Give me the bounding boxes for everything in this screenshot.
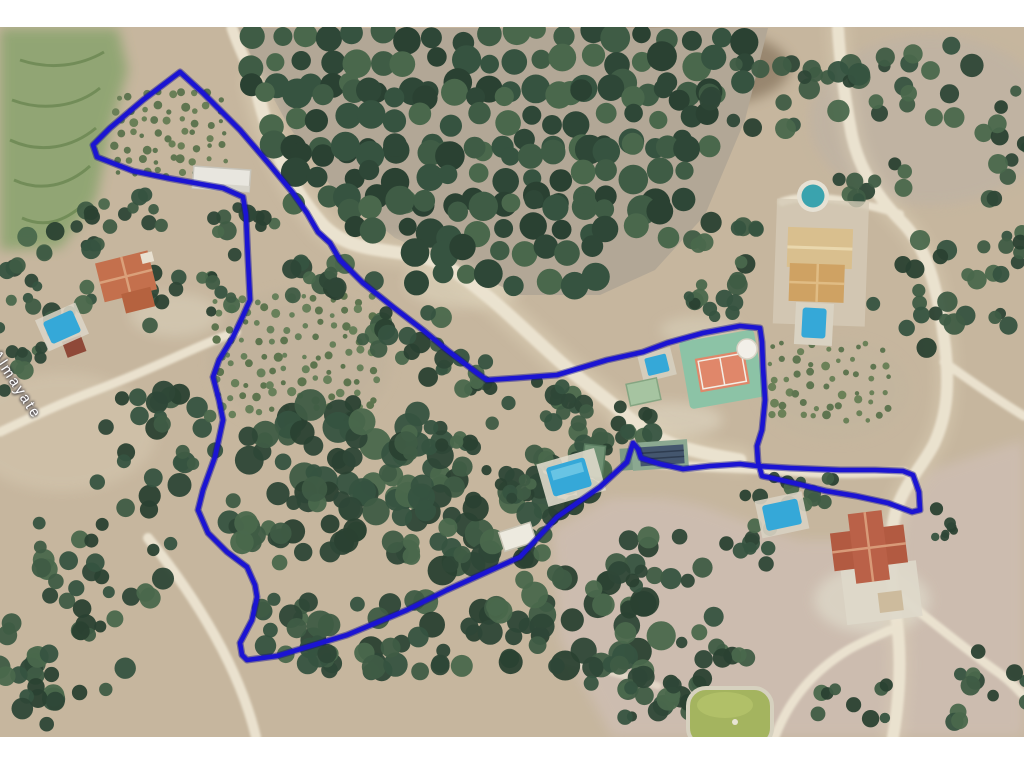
satellite-image bbox=[0, 27, 1024, 737]
screenshot-canvas: Almayate bbox=[0, 0, 1024, 768]
top-margin bbox=[0, 0, 1024, 27]
map-viewport[interactable]: Almayate bbox=[0, 27, 1024, 737]
estate-pool bbox=[794, 302, 834, 346]
white-dome bbox=[737, 339, 757, 359]
bottom-margin bbox=[0, 737, 1024, 768]
estate-round-pool bbox=[797, 180, 829, 212]
pond bbox=[688, 688, 772, 737]
